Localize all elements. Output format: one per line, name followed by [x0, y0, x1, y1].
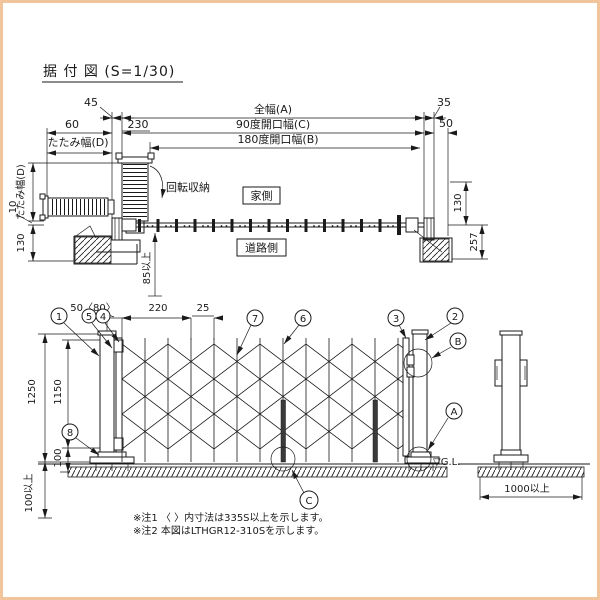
plan-gate-pleats — [138, 218, 415, 232]
drawing-title: 据 付 図 (S=1/30) — [43, 64, 175, 80]
dim-full-width: 全幅(A) — [254, 102, 292, 116]
dim-60: 60 — [65, 118, 79, 131]
dim-50: 50 — [439, 117, 453, 130]
plan-gate-folded-left — [40, 194, 114, 220]
note-2: ※注2 本図はLTHGR12-310Sを示します。 — [133, 524, 324, 537]
lattice-mesh — [122, 344, 403, 449]
dim-230: 230 — [128, 118, 149, 131]
drawing-page: 据 付 図 (S=1/30) 全幅(A) 45 35 90度開口幅(C — [0, 0, 600, 600]
dim-fold-width-top: たたみ幅(D) — [47, 136, 108, 149]
dim-100: 100 — [53, 448, 64, 467]
house-side-label: 家側 — [251, 189, 273, 203]
plan-right-footing-hatch — [423, 239, 449, 261]
balloon-7: 7 — [252, 314, 258, 325]
plan-left-footing-hatch — [75, 237, 111, 263]
dim-25: 25 — [197, 303, 210, 314]
balloon-5: 5 — [86, 312, 92, 323]
dim-10: 10 — [8, 201, 19, 214]
balloon-2: 2 — [452, 312, 458, 323]
balloon-6: 6 — [300, 314, 306, 325]
page-border — [2, 2, 599, 599]
ground-hatch-band — [68, 467, 447, 477]
side-ground-hatch — [478, 467, 584, 477]
dim-220: 220 — [148, 303, 167, 314]
dim-open90: 90度開口幅(C) — [236, 117, 310, 131]
caster-stem-2 — [373, 400, 378, 462]
title-block: 据 付 図 (S=1/30) — [42, 64, 183, 82]
dim-85min: 85以上 — [141, 252, 153, 285]
gl-label: ▽G.L. — [433, 457, 460, 468]
dim-130-left: 130 — [16, 233, 27, 252]
dim-1000min: 1000以上 — [504, 483, 549, 495]
balloon-8: 8 — [67, 428, 73, 439]
balloon-b: B — [455, 337, 462, 348]
balloon-c: C — [306, 496, 313, 507]
road-side-label: 道路側 — [245, 241, 278, 255]
rotate-storage-label: 回転収納 — [166, 181, 210, 194]
installation-drawing-canvas: 据 付 図 (S=1/30) 全幅(A) 45 35 90度開口幅(C — [0, 0, 600, 600]
balloon-a: A — [451, 407, 458, 418]
dim-open180: 180度開口幅(B) — [237, 132, 318, 146]
balloon-3: 3 — [393, 314, 399, 325]
dim-257: 257 — [469, 232, 480, 251]
dim-130-right: 130 — [453, 193, 464, 212]
caster-stem-1 — [281, 400, 286, 462]
dim-35: 35 — [437, 96, 451, 109]
dim-45: 45 — [84, 96, 98, 109]
note-1: ※注1 〈 〉内寸法は335S以上を示します。 — [133, 511, 329, 524]
dim-100min: 100以上 — [23, 473, 35, 512]
balloon-1: 1 — [56, 312, 62, 323]
dim-1250: 1250 — [27, 379, 38, 404]
dim-1150: 1150 — [53, 379, 64, 404]
balloon-4: 4 — [100, 312, 106, 323]
plan-extended-gate — [122, 215, 424, 235]
